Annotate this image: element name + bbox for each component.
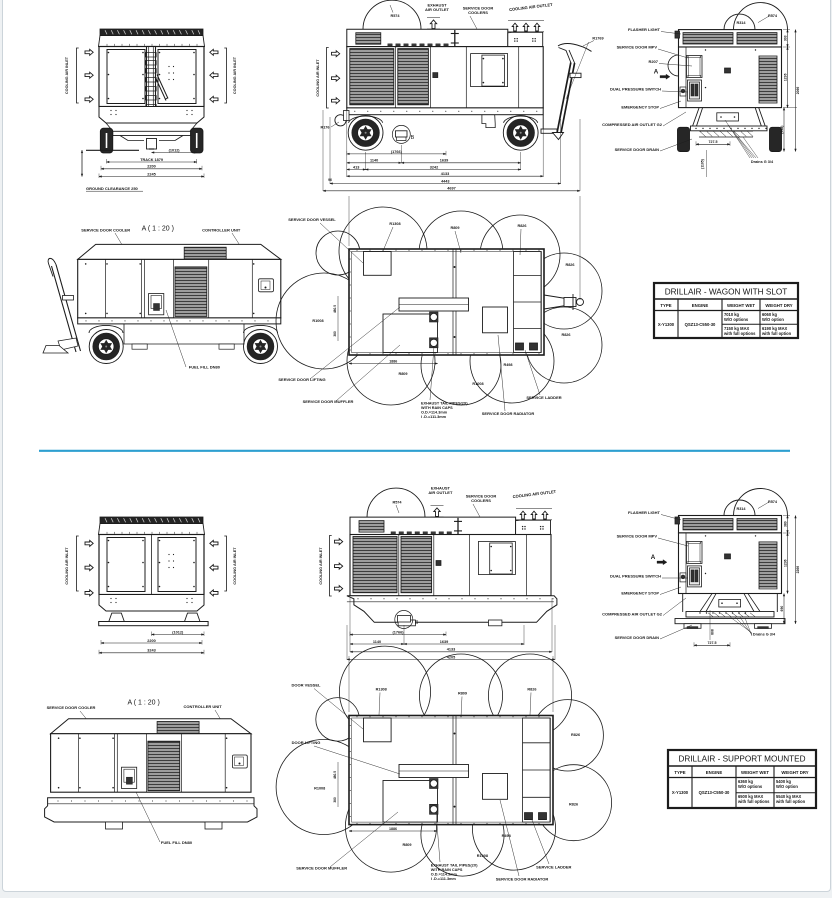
svg-text:TYPE: TYPE (660, 303, 671, 308)
svg-text:(1766): (1766) (393, 631, 405, 635)
svg-text:ENGINE: ENGINE (706, 770, 723, 775)
svg-text:3242: 3242 (430, 165, 438, 169)
svg-text:DUAL PRESSURE SWITCH: DUAL PRESSURE SWITCH (610, 87, 661, 92)
svg-text:R1769: R1769 (592, 37, 603, 41)
svg-text:FLASHER LIGHT: FLASHER LIGHT (628, 510, 661, 515)
svg-text:O.D.=114.3mm: O.D.=114.3mm (421, 411, 448, 415)
svg-text:DOOR VESSEL: DOOR VESSEL (292, 683, 321, 688)
svg-text:W/O option: W/O option (762, 317, 784, 322)
svg-text:COMPRESSED AIR OUTLET G2: COMPRESSED AIR OUTLET G2 (602, 612, 663, 617)
svg-text:R826: R826 (569, 803, 578, 807)
svg-text:(948): (948) (780, 126, 784, 134)
svg-text:R826: R826 (565, 263, 574, 267)
svg-text:TRACK 1879: TRACK 1879 (140, 158, 163, 162)
svg-text:A: A (651, 554, 656, 561)
svg-text:R826: R826 (571, 733, 580, 737)
svg-text:2266: 2266 (796, 566, 800, 574)
svg-text:R574: R574 (392, 501, 402, 505)
svg-text:DOOR LIFTING: DOOR LIFTING (292, 740, 321, 745)
svg-text:COOLING AIR OUTLET: COOLING AIR OUTLET (509, 2, 553, 12)
svg-text:EMERGENCY STOP: EMERGENCY STOP (621, 591, 659, 596)
svg-text:COOLING AIR INLET: COOLING AIR INLET (319, 547, 323, 585)
svg-text:COOLING AIR INLET: COOLING AIR INLET (65, 56, 69, 94)
svg-text:Drains G 3/4: Drains G 3/4 (751, 160, 774, 164)
svg-text:COOLING AIR INLET: COOLING AIR INLET (65, 547, 69, 585)
svg-text:COOLING AIR INLET: COOLING AIR INLET (316, 59, 320, 97)
svg-text:WITH RAIN CAPS: WITH RAIN CAPS (431, 868, 463, 872)
svg-text:B: B (415, 620, 419, 626)
svg-text:(1105): (1105) (701, 159, 705, 169)
svg-text:380: 380 (333, 331, 337, 337)
svg-text:with full option: with full option (761, 331, 792, 336)
svg-text:EMERGENCY STOP: EMERGENCY STOP (621, 105, 659, 110)
svg-text:SERVICE LADDER: SERVICE LADDER (526, 395, 561, 400)
svg-text:(1012): (1012) (172, 630, 184, 634)
svg-text:SERVICE DOOR DRAIN: SERVICE DOOR DRAIN (615, 635, 659, 640)
svg-text:CONTROLLER UNIT: CONTROLLER UNIT (202, 228, 241, 233)
svg-text:480.5: 480.5 (333, 305, 337, 313)
svg-text:380: 380 (783, 521, 787, 527)
svg-text:AIR OUTLET: AIR OUTLET (428, 490, 453, 495)
svg-text:SERVICE DOOR LIFTING: SERVICE DOOR LIFTING (278, 377, 325, 382)
svg-text:W/O option: W/O option (776, 784, 798, 789)
svg-text:690: 690 (780, 606, 784, 612)
svg-text:COMPRESSED AIR OUTLET G2: COMPRESSED AIR OUTLET G2 (602, 122, 663, 127)
svg-text:DRILLAIR - SUPPORT MOUNTED: DRILLAIR - SUPPORT MOUNTED (678, 755, 805, 764)
svg-text:A ( 1 : 20 ): A ( 1 : 20 ) (142, 226, 174, 233)
svg-text:W/O options: W/O options (738, 784, 763, 789)
svg-text:TYPE: TYPE (674, 770, 685, 775)
svg-text:727.5: 727.5 (708, 641, 717, 645)
svg-text:COOLERS: COOLERS (471, 498, 491, 503)
svg-text:SERVICE DOOR MUFFLER: SERVICE DOOR MUFFLER (296, 866, 347, 871)
svg-text:380: 380 (333, 797, 337, 803)
svg-text:2245: 2245 (147, 172, 155, 176)
svg-text:R314: R314 (736, 507, 746, 511)
svg-text:R1008: R1008 (477, 854, 488, 858)
svg-text:303: 303 (783, 35, 787, 41)
svg-text:R826: R826 (527, 688, 536, 692)
svg-text:1236: 1236 (783, 559, 787, 567)
svg-text:R826: R826 (517, 224, 526, 228)
svg-text:4443: 4443 (441, 179, 449, 183)
svg-text:AIR OUTLET: AIR OUTLET (425, 7, 450, 12)
svg-text:QSZ13-C550-30: QSZ13-C550-30 (685, 322, 716, 327)
svg-text:SERVICE DOOR MPV: SERVICE DOOR MPV (617, 45, 658, 50)
svg-text:ENGINE: ENGINE (692, 303, 709, 308)
svg-text:Drains G 3/4: Drains G 3/4 (753, 633, 776, 637)
svg-text:QSZ13-C550-30: QSZ13-C550-30 (699, 790, 730, 795)
svg-text:1639: 1639 (440, 640, 448, 644)
svg-text:R1008: R1008 (314, 787, 325, 791)
svg-text:with full option: with full option (775, 799, 806, 804)
svg-text:808: 808 (711, 629, 715, 635)
svg-text:B: B (411, 135, 415, 141)
svg-text:4133: 4133 (447, 648, 455, 652)
svg-text:DUAL PRESSURE SWITCH: DUAL PRESSURE SWITCH (610, 574, 661, 579)
svg-text:with full options: with full options (737, 799, 770, 804)
svg-text:R574: R574 (768, 14, 778, 18)
svg-text:SERVICE DOOR MPV: SERVICE DOOR MPV (617, 534, 658, 539)
svg-text:1236: 1236 (783, 73, 787, 81)
svg-text:R498: R498 (503, 363, 512, 367)
svg-text:R1008: R1008 (312, 319, 323, 323)
svg-text:1886: 1886 (389, 359, 397, 363)
svg-text:2200: 2200 (147, 639, 155, 643)
svg-text:R574: R574 (390, 14, 400, 18)
svg-text:SERVICE DOOR VESSEL: SERVICE DOOR VESSEL (288, 217, 336, 222)
svg-text:COOLING AIR INLET: COOLING AIR INLET (233, 56, 237, 94)
svg-text:WEIGHT WET: WEIGHT WET (727, 303, 755, 308)
svg-text:3243: 3243 (147, 649, 155, 653)
svg-text:R809: R809 (450, 226, 459, 230)
svg-text:R1308: R1308 (389, 222, 400, 226)
svg-text:EXHAUST TAIL PIPES(2X): EXHAUST TAIL PIPES(2X) (431, 864, 478, 868)
svg-text:FLASHER LIGHT: FLASHER LIGHT (628, 27, 661, 32)
svg-text:1140: 1140 (373, 640, 381, 644)
svg-text:COOLERS: COOLERS (468, 10, 488, 15)
svg-text:GROUND CLEARANCE 250: GROUND CLEARANCE 250 (86, 186, 139, 191)
svg-text:R314: R314 (736, 21, 746, 25)
svg-text:2066: 2066 (796, 87, 800, 95)
svg-text:X-Y1300: X-Y1300 (672, 790, 689, 795)
svg-text:R826: R826 (561, 333, 570, 337)
svg-text:413: 413 (353, 165, 359, 169)
svg-text:1886: 1886 (389, 827, 397, 831)
svg-text:R1308: R1308 (376, 688, 387, 692)
svg-text:WEIGHT DRY: WEIGHT DRY (781, 770, 808, 775)
svg-text:R809: R809 (458, 692, 467, 696)
svg-text:727.5: 727.5 (709, 140, 718, 144)
svg-text:SERVICE DOOR DRAIN: SERVICE DOOR DRAIN (615, 147, 659, 152)
svg-text:WITH RAIN CAPS: WITH RAIN CAPS (421, 406, 453, 410)
svg-text:4697: 4697 (447, 187, 455, 191)
svg-text:SERVICE DOOR MUFFLER: SERVICE DOOR MUFFLER (303, 399, 354, 404)
svg-text:W/O options: W/O options (724, 317, 749, 322)
svg-text:WEIGHT WET: WEIGHT WET (741, 770, 769, 775)
svg-text:WEIGHT DRY: WEIGHT DRY (765, 303, 792, 308)
svg-text:with full options: with full options (723, 331, 756, 336)
svg-text:R207: R207 (648, 59, 658, 64)
svg-text:DRILLAIR - WAGON WITH SLOT: DRILLAIR - WAGON WITH SLOT (665, 288, 788, 297)
svg-text:R809: R809 (398, 372, 407, 376)
svg-text:(1012): (1012) (169, 148, 181, 152)
svg-text:R1008: R1008 (472, 382, 483, 386)
svg-text:SERVICE LADDER: SERVICE LADDER (536, 865, 571, 870)
svg-text:FUEL FILL DN80: FUEL FILL DN80 (189, 365, 221, 370)
svg-text:FUEL FILL DN80: FUEL FILL DN80 (161, 840, 193, 845)
svg-text:R809: R809 (402, 843, 411, 847)
svg-text:1639: 1639 (440, 159, 448, 163)
svg-text:A: A (654, 69, 659, 76)
svg-text:I .D.=111.3mm: I .D.=111.3mm (421, 415, 447, 419)
svg-text:4133: 4133 (441, 172, 449, 176)
svg-text:O.D.=114.3mm: O.D.=114.3mm (431, 873, 458, 877)
svg-text:A ( 1 : 20 ): A ( 1 : 20 ) (128, 700, 160, 707)
svg-text:SERVICE DOOR RADIATOR: SERVICE DOOR RADIATOR (482, 411, 535, 416)
svg-text:480.5: 480.5 (333, 771, 337, 779)
svg-text:EXHAUST TAIL PIPES(2X): EXHAUST TAIL PIPES(2X) (421, 402, 468, 406)
svg-text:1140: 1140 (370, 159, 378, 163)
svg-text:2200: 2200 (147, 165, 155, 169)
svg-text:I .D.=111.3mm: I .D.=111.3mm (431, 877, 457, 881)
svg-text:X-Y1300: X-Y1300 (658, 322, 675, 327)
svg-text:COOLING AIR INLET: COOLING AIR INLET (233, 547, 237, 585)
svg-text:R176: R176 (320, 126, 329, 130)
svg-text:R574: R574 (768, 500, 778, 504)
svg-text:SERVICE DOOR COOLER: SERVICE DOOR COOLER (81, 228, 130, 233)
svg-text:(1766): (1766) (391, 150, 403, 154)
svg-text:CONTROLLER UNIT: CONTROLLER UNIT (183, 704, 222, 709)
svg-text:COOLING AIR OUTLET: COOLING AIR OUTLET (512, 489, 556, 499)
svg-text:SERVICE DOOR COOLER: SERVICE DOOR COOLER (47, 705, 96, 710)
svg-text:SERVICE DOOR RADIATOR: SERVICE DOOR RADIATOR (496, 877, 549, 882)
